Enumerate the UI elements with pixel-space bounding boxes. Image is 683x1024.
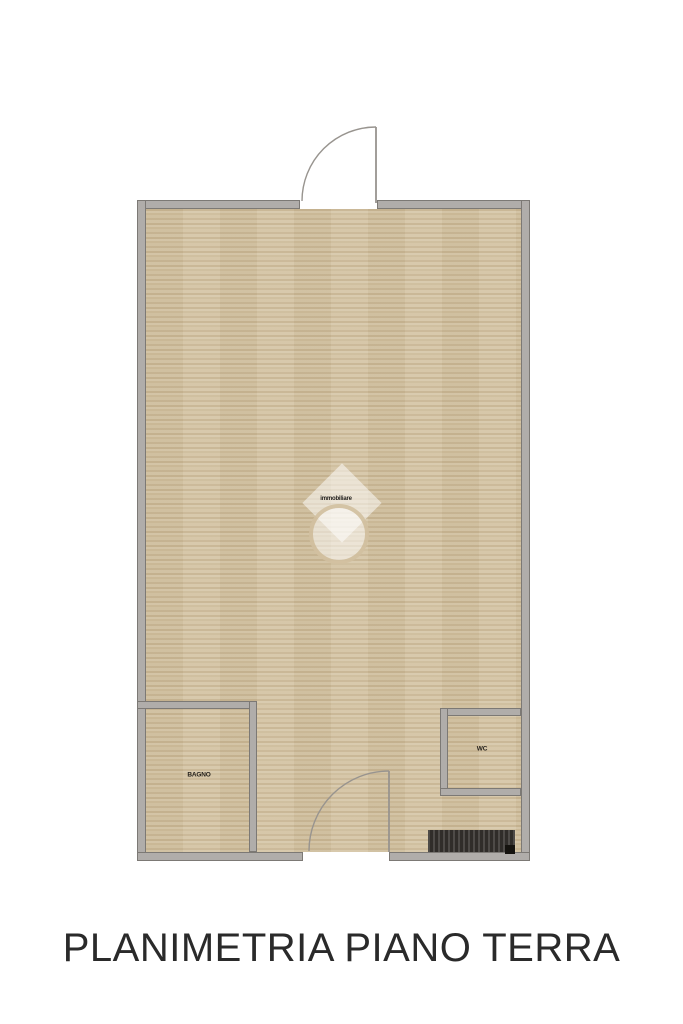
door-swing-arc-bottom <box>309 771 389 851</box>
floor-plan-page: immobiliare BAGNO WC PLANIMETRIA PIANO T… <box>0 0 683 1024</box>
door-symbols-layer <box>0 0 683 1024</box>
door-swing-arc-top <box>302 127 376 201</box>
